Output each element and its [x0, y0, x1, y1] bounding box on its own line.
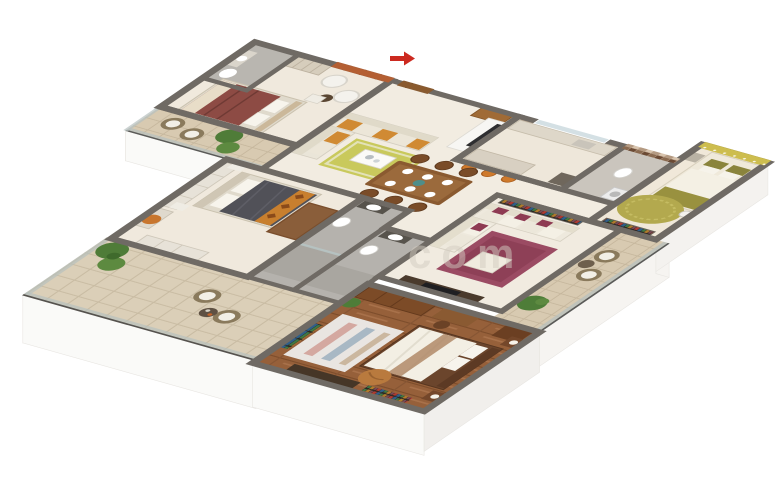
floor-plan-page: com: [0, 0, 780, 490]
floor-plan-render: com: [0, 0, 780, 490]
entrance-arrow-icon: [390, 52, 415, 66]
watermark: com: [408, 230, 524, 277]
